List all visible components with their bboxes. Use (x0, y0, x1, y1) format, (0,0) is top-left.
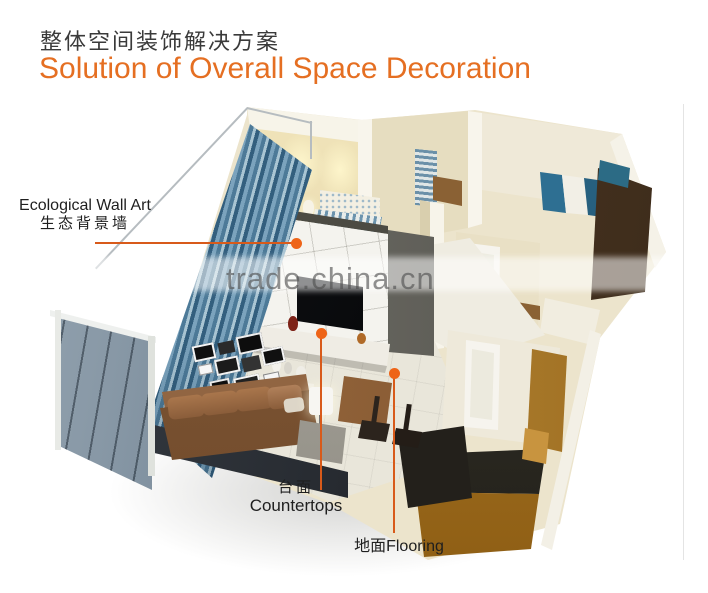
callout-wall-art-label: Ecological Wall Art 生态背景墙 (10, 197, 160, 233)
page: trade.china.cn 整体空间装饰解决方案 Solution of Ov… (0, 0, 708, 593)
callout-wall-art-dot (291, 238, 302, 249)
picture-frame (261, 346, 286, 366)
picture-frame (192, 342, 217, 362)
callout-flooring-line (393, 373, 395, 533)
picture-frame (217, 340, 235, 355)
callout-wall-art-line (95, 242, 293, 244)
countertops-label-zh: 台面 (236, 479, 356, 496)
wall-art-label-zh: 生态背景墙 (10, 215, 160, 232)
red-vase (288, 316, 298, 331)
page-fold-line (683, 104, 684, 560)
callout-flooring-label: 地面Flooring (340, 538, 458, 556)
sofa-cushion (201, 390, 239, 416)
picture-frame (198, 363, 214, 376)
wall-art-label-en: Ecological Wall Art (10, 197, 160, 215)
callout-countertops-line (320, 333, 322, 490)
balcony-rail-post (55, 310, 61, 450)
flooring-label: 地面Flooring (340, 538, 458, 556)
amber-vase (357, 333, 366, 344)
balcony-rail-post (148, 336, 155, 476)
countertops-label-en: Countertops (236, 496, 356, 516)
picture-frame (241, 355, 262, 372)
page-title-english: Solution of Overall Space Decoration (39, 52, 531, 86)
balcony-frame-post (310, 121, 312, 159)
watermark-text: trade.china.cn (226, 261, 435, 297)
callout-flooring-dot (389, 368, 400, 379)
throw-pillow (283, 397, 305, 414)
picture-frame (214, 355, 241, 376)
callout-countertops-label: 台面 Countertops (236, 479, 356, 516)
sofa-cushion (167, 394, 205, 420)
callout-countertops-dot (316, 328, 327, 339)
